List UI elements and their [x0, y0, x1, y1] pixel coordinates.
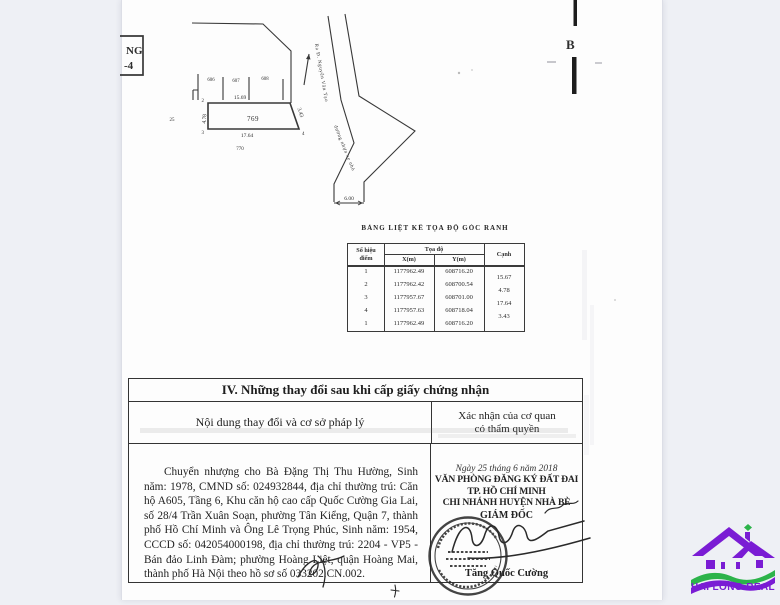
confirmation-cell: Ngày 25 tháng 6 năm 2018 VĂN PHÒNG ĐĂNG … — [431, 444, 582, 582]
table-line — [348, 265, 524, 267]
point-cell: 1 — [348, 320, 384, 327]
transfer-paragraph: Chuyển nhượng cho Bà Đặng Thị Thu Hường,… — [144, 465, 418, 582]
x-cell: 1177957.67 — [384, 294, 434, 301]
col-header-x: X(m) — [384, 256, 434, 263]
col-header-point-l1: Số hiệu — [348, 247, 384, 255]
col-header-content: Nội dung thay đổi và cơ sở pháp lý — [129, 402, 432, 443]
signer-title: GIÁM ĐỐC — [431, 510, 582, 521]
col-header-point-l2: điểm — [348, 255, 384, 263]
y-cell: 608701.00 — [434, 294, 484, 301]
x-cell: 1177962.49 — [384, 320, 434, 327]
edge-cell: 3.43 — [484, 313, 524, 320]
point-cell: 3 — [348, 294, 384, 301]
point-cell: 2 — [348, 281, 384, 288]
logo-window — [736, 562, 740, 569]
col-header-confirm: Xác nhận của cơ quan có thẩm quyền — [432, 402, 582, 443]
logo-roofs — [692, 527, 775, 569]
edge-cell: 15.67 — [484, 274, 524, 281]
edge-cell: 4.78 — [484, 287, 524, 294]
logo-window — [706, 560, 715, 569]
logo-window — [721, 562, 725, 569]
scanned-certificate-photo: BẢNG LIỆT KÊ TỌA ĐỘ GÓC RANH Số hiệu điể… — [0, 0, 780, 600]
col-header-coords: Tọa độ — [384, 246, 484, 253]
coordinate-table: Số hiệu điểm Tọa độ X(m) Y(m) Cạnh 1 117… — [347, 243, 525, 332]
y-cell: 608700.54 — [434, 281, 484, 288]
office-line-2: TP. HỒ CHÍ MINH — [431, 486, 582, 498]
hailong-real-logo: HAI LONG REAL — [688, 520, 778, 600]
x-cell: 1177957.63 — [384, 307, 434, 314]
date-line: Ngày 25 tháng 6 năm 2018 — [431, 464, 582, 474]
logo-side-roof — [732, 541, 775, 558]
coord-table-title: BẢNG LIỆT KÊ TỌA ĐỘ GÓC RANH — [347, 224, 523, 232]
logo-main-roof — [692, 527, 766, 556]
y-cell: 608716.20 — [434, 268, 484, 275]
col-header-point: Số hiệu điểm — [348, 247, 384, 262]
logo-text: HAI LONG REAL — [688, 582, 778, 593]
table-line — [384, 254, 484, 255]
y-cell: 608718.04 — [434, 307, 484, 314]
office-line-3: CHI NHÁNH HUYỆN NHÀ BÈ — [431, 497, 582, 509]
change-content-cell: Chuyển nhượng cho Bà Đặng Thị Thu Hường,… — [129, 444, 431, 582]
section-iv-title: IV. Những thay đổi sau khi cấp giấy chứn… — [129, 379, 582, 402]
y-cell: 608716.20 — [434, 320, 484, 327]
edge-cell: 17.64 — [484, 300, 524, 307]
logo-window — [756, 560, 763, 568]
x-cell: 1177962.49 — [384, 268, 434, 275]
signer-name: Tăng Quốc Cường — [431, 568, 582, 579]
logo-green-diamond — [744, 524, 752, 531]
section-iv-box: IV. Những thay đổi sau khi cấp giấy chứn… — [128, 378, 583, 583]
point-cell: 1 — [348, 268, 384, 275]
col-header-y: Y(m) — [434, 256, 484, 263]
point-cell: 4 — [348, 307, 384, 314]
col-header-edge: Cạnh — [484, 251, 524, 258]
office-line-1: VĂN PHÒNG ĐĂNG KÝ ĐẤT ĐAI — [431, 474, 582, 486]
col-header-confirm-l2: có thẩm quyền — [475, 423, 540, 436]
x-cell: 1177962.42 — [384, 281, 434, 288]
col-header-confirm-l1: Xác nhận của cơ quan — [458, 410, 555, 423]
